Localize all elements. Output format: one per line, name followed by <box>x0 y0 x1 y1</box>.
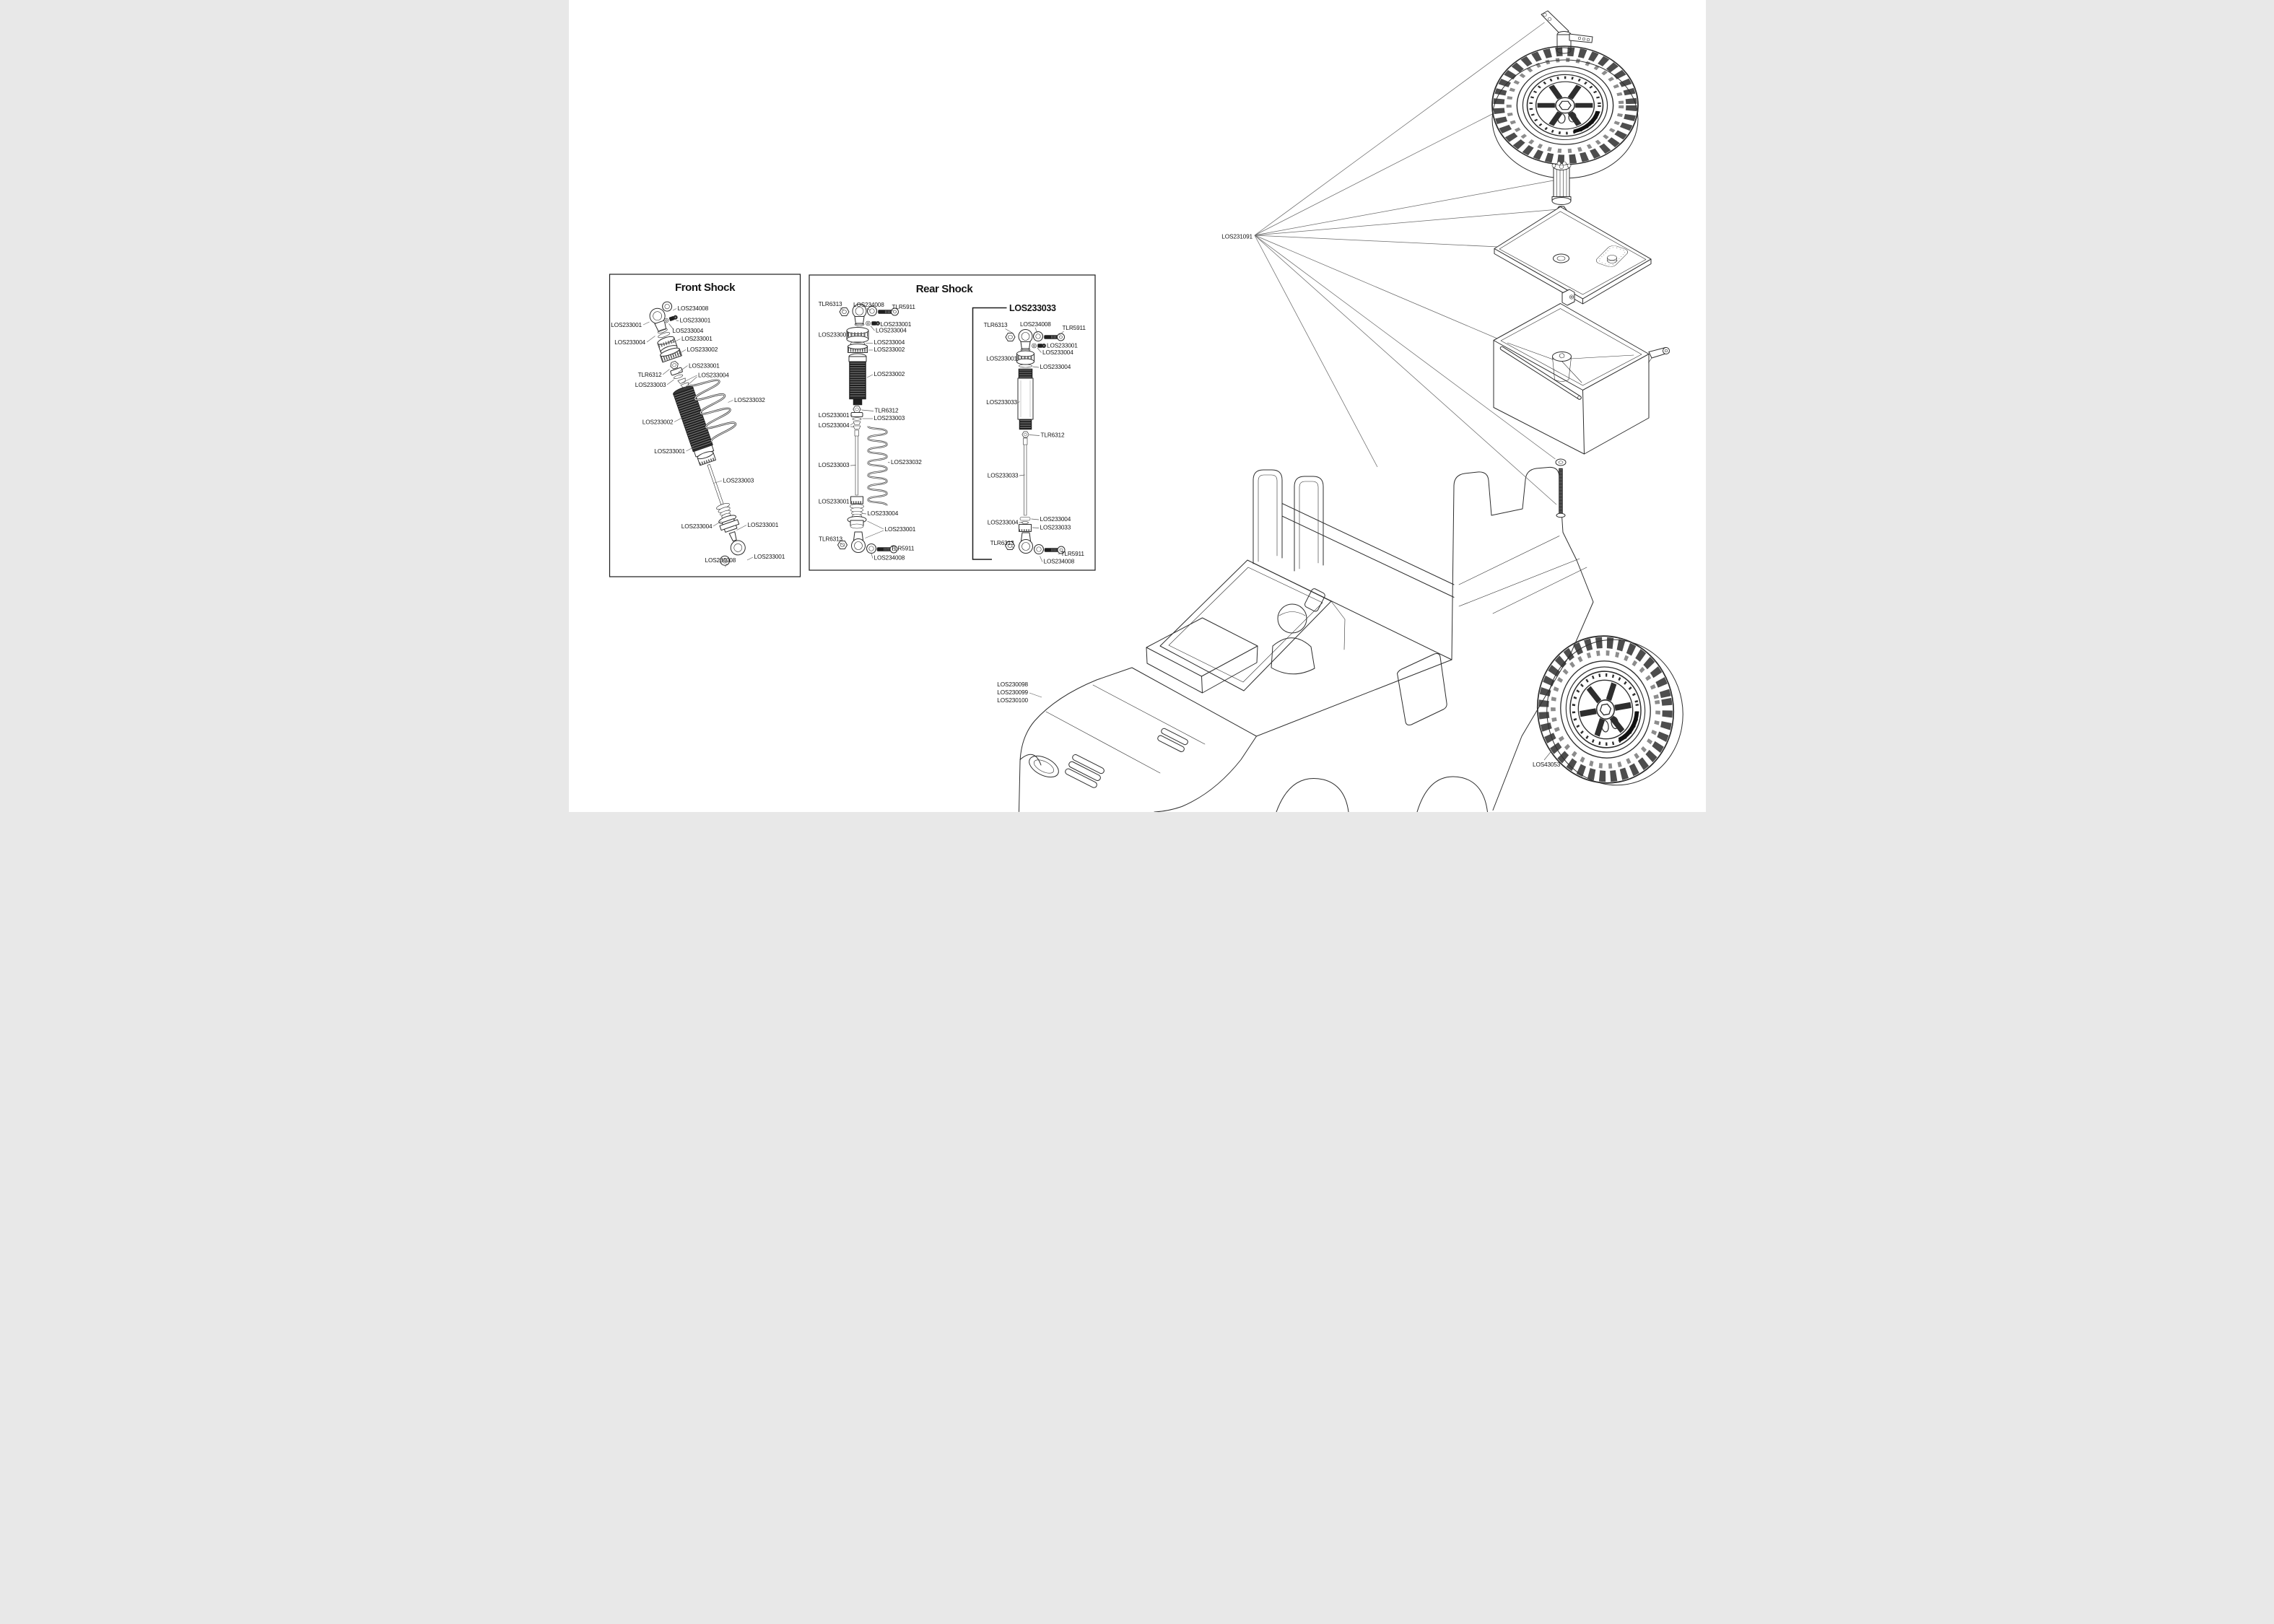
cowl-box <box>1146 618 1258 693</box>
part-label: LOS234008 <box>677 305 708 312</box>
part-label: LOS233003 <box>818 462 849 468</box>
part-label: TLR5911 <box>892 304 915 310</box>
part-label: TLR5911 <box>1060 551 1084 557</box>
part-label: LOS233004 <box>1040 516 1071 523</box>
part-label: LOS233004 <box>672 328 703 334</box>
piston-nut <box>1021 432 1028 437</box>
mount-screw <box>1556 468 1565 518</box>
part-label: LOS233002 <box>642 419 673 426</box>
shock-body-cap <box>850 497 863 504</box>
shock-cap <box>1016 351 1034 364</box>
part-label: LOS233004 <box>1040 364 1071 370</box>
rod-end-mount <box>848 517 866 529</box>
part-label: LOS233004 <box>1042 349 1073 356</box>
los233033-title: LOS233033 <box>1009 303 1056 313</box>
part-label: TLR6312 <box>874 408 898 414</box>
part-label: LOS233002 <box>874 371 905 377</box>
part-label: LOS233003 <box>874 415 905 422</box>
windshield <box>1160 560 1331 691</box>
body-shell-callout: LOS230098 LOS230099 LOS230100 <box>997 681 1042 704</box>
roll-hoop <box>1253 470 1282 564</box>
part-label: TLR6313 <box>818 301 842 307</box>
shock-piston <box>851 413 863 417</box>
part-label: LOS233004 <box>874 339 905 346</box>
spare-tire-latch-lever <box>1541 11 1593 53</box>
part-label: LOS233033 <box>987 473 1018 479</box>
part-label: TLR5911 <box>891 546 915 552</box>
part-label: LOS230100 <box>997 697 1028 704</box>
part-label: TLR6313 <box>990 540 1014 546</box>
piston-nut <box>853 406 860 413</box>
part-label: LOS233001 <box>818 412 849 419</box>
part-label: LOS234008 <box>874 555 905 562</box>
part-label: LOS233001 <box>986 356 1017 362</box>
spare-tire-post <box>1552 162 1571 205</box>
part-label: LOS233001 <box>818 499 849 505</box>
part-label: LOS233003 <box>635 382 666 388</box>
part-label: LOS233004 <box>614 339 645 346</box>
cargo-box-lid <box>1494 207 1651 306</box>
part-label: LOS234008 <box>1043 559 1074 565</box>
spare-tire: TRAIL GRAPPLER M/T <box>569 0 1638 178</box>
rear-shock-panel: Rear Shock <box>809 275 1095 570</box>
part-label: LOS233004 <box>987 520 1018 526</box>
shock-adjuster-nut <box>848 344 867 353</box>
driver-figure <box>1271 588 1326 673</box>
part-label: LOS233004 <box>681 523 712 530</box>
part-label: LOS233001 <box>1047 343 1078 349</box>
hood-vents <box>1156 728 1188 753</box>
part-label: TLR6312 <box>1040 432 1064 439</box>
exploded-parts-diagram: Front Shock <box>569 0 1706 812</box>
front-shock-panel: Front Shock <box>609 274 800 577</box>
shock-cap <box>847 328 868 343</box>
part-label: LOS233001 <box>880 321 911 328</box>
rear-wheel-assembly: LOS43053 <box>1525 625 1694 796</box>
part-label: LOS233003 <box>723 478 754 484</box>
part-label: LOS233001 <box>689 363 720 370</box>
part-label: LOS230099 <box>997 689 1028 696</box>
rear-shock-title: Rear Shock <box>915 283 973 295</box>
lid-hinge <box>1562 289 1574 305</box>
shock-shaft <box>855 430 858 495</box>
part-label: LOS233002 <box>687 346 718 353</box>
diagram-page: Front Shock <box>569 0 1706 812</box>
part-label: TLR6313 <box>983 322 1007 328</box>
part-label: LOS233001 <box>611 322 642 328</box>
shaft-seal <box>1020 518 1030 521</box>
shock-body-cap <box>1019 525 1031 532</box>
part-label: LOS233001 <box>654 448 685 455</box>
part-label: LOS233001 <box>818 332 849 339</box>
front-shock-title: Front Shock <box>674 281 735 294</box>
hood-vents <box>1064 754 1105 789</box>
shock-body <box>1018 369 1033 429</box>
part-label: LOS233004 <box>818 422 849 429</box>
part-label: TLR6313 <box>819 536 842 543</box>
cargo-box <box>1494 304 1670 455</box>
rear-tire <box>1525 625 1694 796</box>
shock-body <box>849 354 866 405</box>
part-label: LOS233001 <box>747 522 778 528</box>
part-label: LOS234008 <box>1020 321 1051 328</box>
part-label: LOS234008 <box>853 302 884 308</box>
part-label: LOS233032 <box>891 459 922 466</box>
fuel-cap-detail <box>1553 254 1569 263</box>
mount-washer <box>1556 459 1566 466</box>
part-label: LOS234008 <box>705 557 736 564</box>
part-label: LOS233033 <box>1040 525 1071 531</box>
part-label: LOS233001 <box>679 318 710 324</box>
part-label: LOS43053 <box>1533 761 1561 768</box>
part-label: TLR6312 <box>637 372 661 378</box>
part-label: LOS233033 <box>986 399 1017 406</box>
shock-shaft <box>1024 438 1027 515</box>
group-part-label: LOS231091 <box>1221 234 1253 240</box>
part-label: LOS233001 <box>754 554 785 560</box>
part-label: LOS233001 <box>884 526 915 533</box>
box-latch-handle <box>1648 348 1669 363</box>
part-label: LOS233002 <box>874 346 905 353</box>
part-label: LOS233004 <box>867 510 898 517</box>
shock-bellows <box>850 505 863 518</box>
part-label: LOS233032 <box>734 397 765 403</box>
part-label: TLR5911 <box>1062 325 1086 331</box>
part-label: LOS233001 <box>681 336 713 342</box>
part-label: LOS233004 <box>876 328 907 334</box>
part-label: LOS230098 <box>997 681 1028 688</box>
part-label: LOS233004 <box>698 372 729 379</box>
